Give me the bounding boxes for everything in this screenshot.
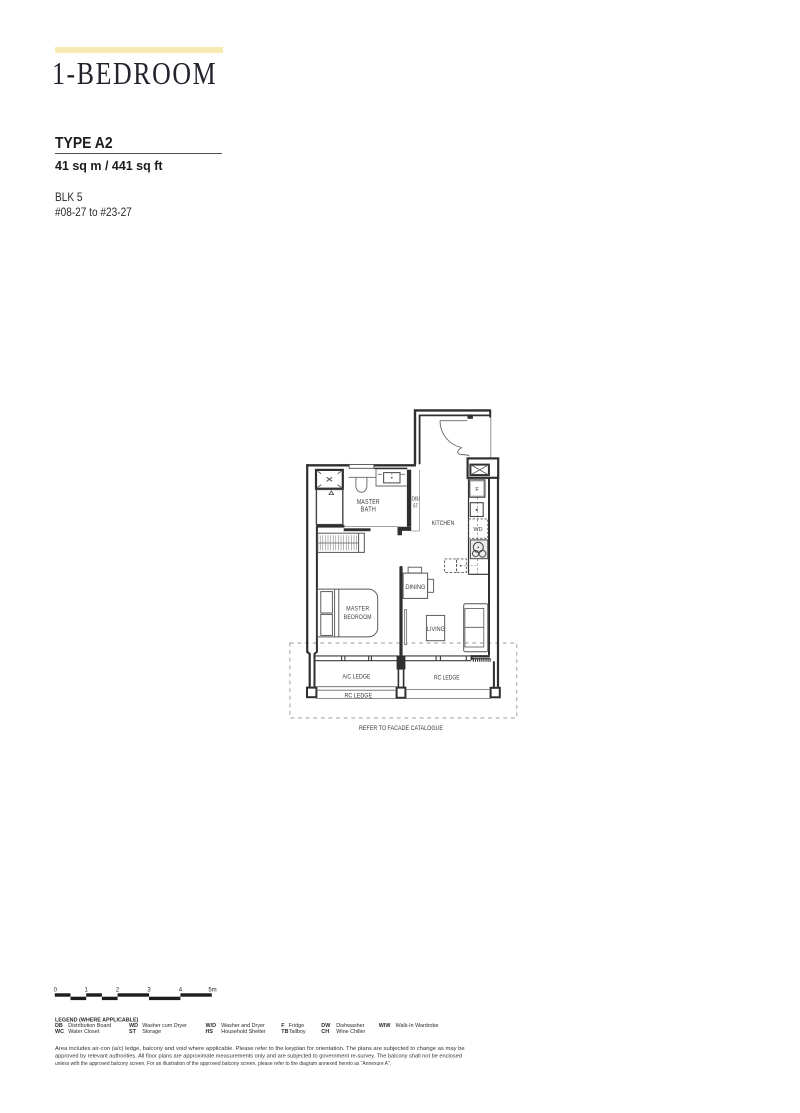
svg-text:Area includes air-con (a/c) le: Area includes air-con (a/c) ledge, balco… bbox=[55, 1046, 465, 1052]
svg-text:MASTER: MASTER bbox=[357, 499, 380, 506]
svg-text:Household Shelter: Household Shelter bbox=[221, 1029, 266, 1035]
svg-text:F: F bbox=[475, 487, 479, 493]
svg-text:A/C LEDGE: A/C LEDGE bbox=[342, 674, 370, 681]
svg-text:ST: ST bbox=[413, 504, 418, 510]
svg-text:5m: 5m bbox=[208, 987, 216, 993]
svg-text:1: 1 bbox=[85, 987, 89, 993]
svg-text:WC: WC bbox=[55, 1029, 64, 1035]
svg-text:Water Closet: Water Closet bbox=[68, 1029, 99, 1035]
svg-text:Walk-In Wardrobe: Walk-In Wardrobe bbox=[396, 1023, 439, 1029]
svg-text:Wine Chiller: Wine Chiller bbox=[336, 1029, 365, 1035]
svg-text:2: 2 bbox=[116, 987, 120, 993]
svg-text:BATH: BATH bbox=[361, 506, 377, 513]
svg-text:ST: ST bbox=[129, 1029, 137, 1035]
svg-text:MASTER: MASTER bbox=[346, 605, 369, 612]
svg-text:TB: TB bbox=[281, 1029, 288, 1035]
svg-text:DINING: DINING bbox=[405, 585, 425, 591]
svg-text:4: 4 bbox=[179, 987, 183, 993]
svg-text:HS: HS bbox=[206, 1029, 214, 1035]
svg-text:0: 0 bbox=[54, 987, 58, 993]
svg-text:RC LEDGE: RC LEDGE bbox=[434, 674, 460, 681]
svg-text:REFER TO FACADE CATALOGUE: REFER TO FACADE CATALOGUE bbox=[359, 725, 443, 732]
svg-text:unless with the approved balco: unless with the approved balcony screen.… bbox=[55, 1061, 391, 1067]
svg-text:CH: CH bbox=[321, 1029, 329, 1035]
svg-text:RC LEDGE: RC LEDGE bbox=[345, 694, 373, 700]
svg-text:approved by relevant authoriti: approved by relevant authorities. All fl… bbox=[55, 1053, 462, 1059]
svg-text:3: 3 bbox=[147, 987, 151, 993]
svg-text:Tallboy: Tallboy bbox=[289, 1029, 306, 1035]
svg-text:Storage: Storage bbox=[142, 1029, 161, 1035]
svg-text:DB/: DB/ bbox=[412, 496, 421, 502]
svg-text:LIVING: LIVING bbox=[427, 626, 445, 633]
svg-text:KITCHEN: KITCHEN bbox=[432, 520, 455, 527]
svg-text:WIW: WIW bbox=[379, 1023, 392, 1029]
svg-text:WD: WD bbox=[474, 527, 483, 533]
svg-text:BEDROOM: BEDROOM bbox=[344, 614, 372, 621]
